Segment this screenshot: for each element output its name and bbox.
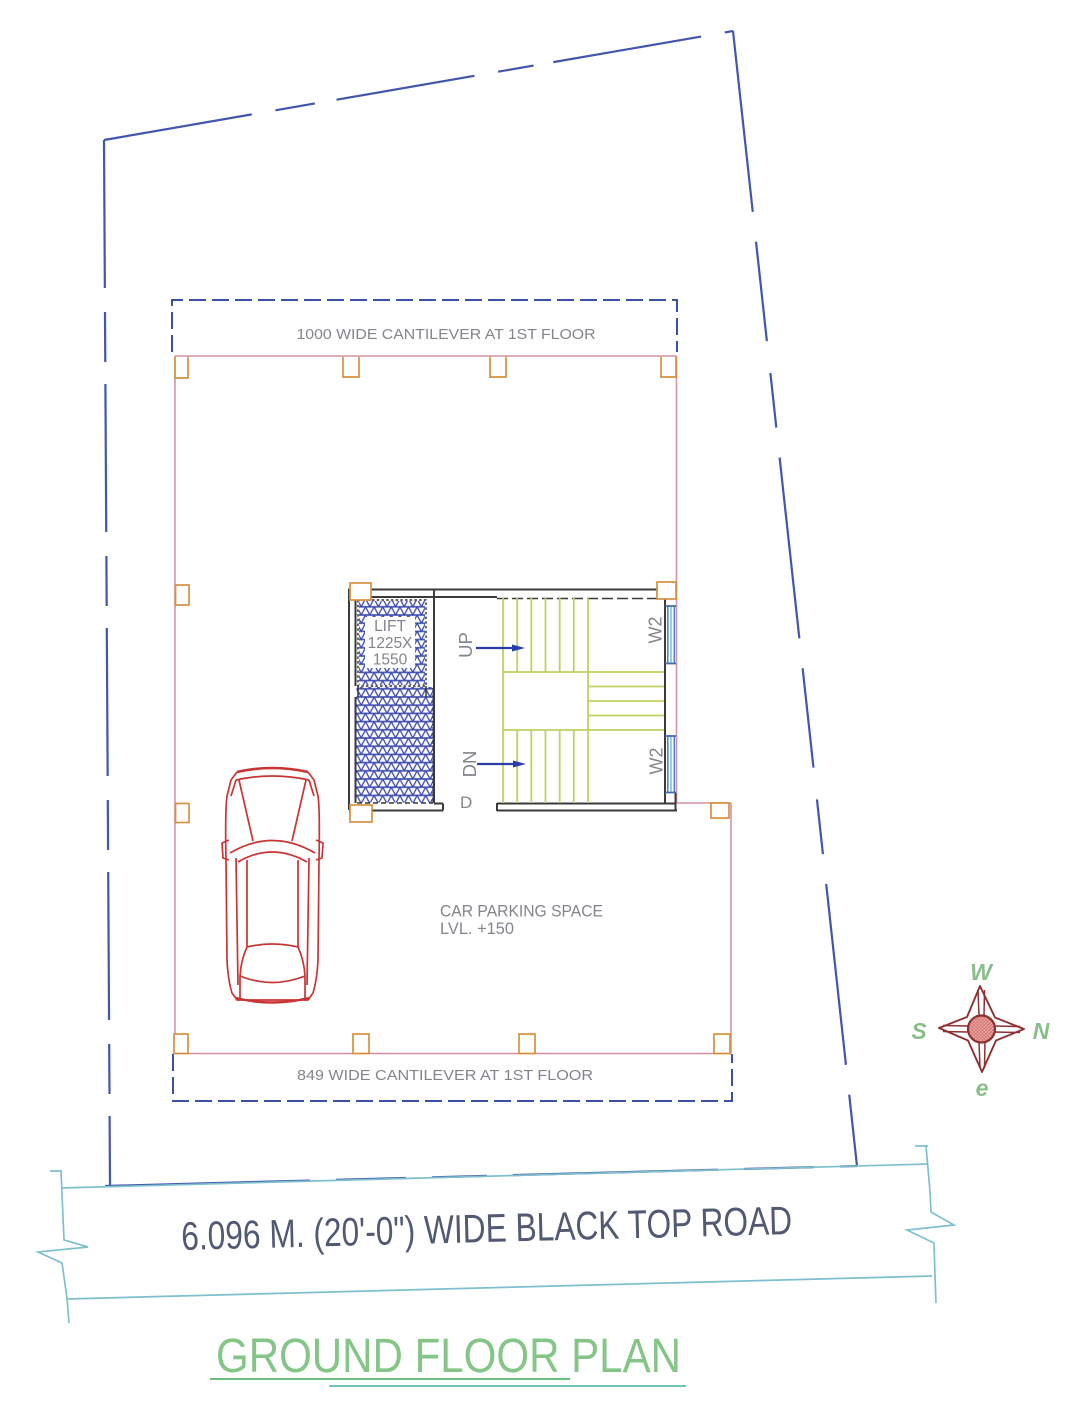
svg-text:W2: W2 <box>647 748 667 775</box>
svg-text:e: e <box>976 1075 989 1101</box>
svg-text:1000 WIDE CANTILEVER AT 1ST FL: 1000 WIDE CANTILEVER AT 1ST FLOOR <box>297 327 596 343</box>
svg-text:DN: DN <box>459 751 480 778</box>
svg-text:1550: 1550 <box>373 652 408 669</box>
svg-text:N: N <box>1033 1018 1050 1044</box>
svg-text:LVL. +150: LVL. +150 <box>440 919 514 938</box>
svg-text:CAR PARKING SPACE: CAR PARKING SPACE <box>440 902 603 921</box>
svg-text:W2: W2 <box>646 617 666 644</box>
svg-text:LIFT: LIFT <box>374 618 406 635</box>
svg-text:GROUND FLOOR PLAN: GROUND FLOOR PLAN <box>216 1330 681 1383</box>
svg-text:849 WIDE CANTILEVER AT 1ST FLO: 849 WIDE CANTILEVER AT 1ST FLOOR <box>297 1068 593 1084</box>
svg-text:D: D <box>460 793 472 812</box>
svg-text:6.096 M. (20'-0") WIDE BLACK T: 6.096 M. (20'-0") WIDE BLACK TOP ROAD <box>181 1199 793 1259</box>
svg-text:S: S <box>911 1018 927 1044</box>
svg-text:UP: UP <box>455 632 476 658</box>
svg-text:1225X: 1225X <box>368 635 413 652</box>
svg-text:W: W <box>970 959 994 985</box>
